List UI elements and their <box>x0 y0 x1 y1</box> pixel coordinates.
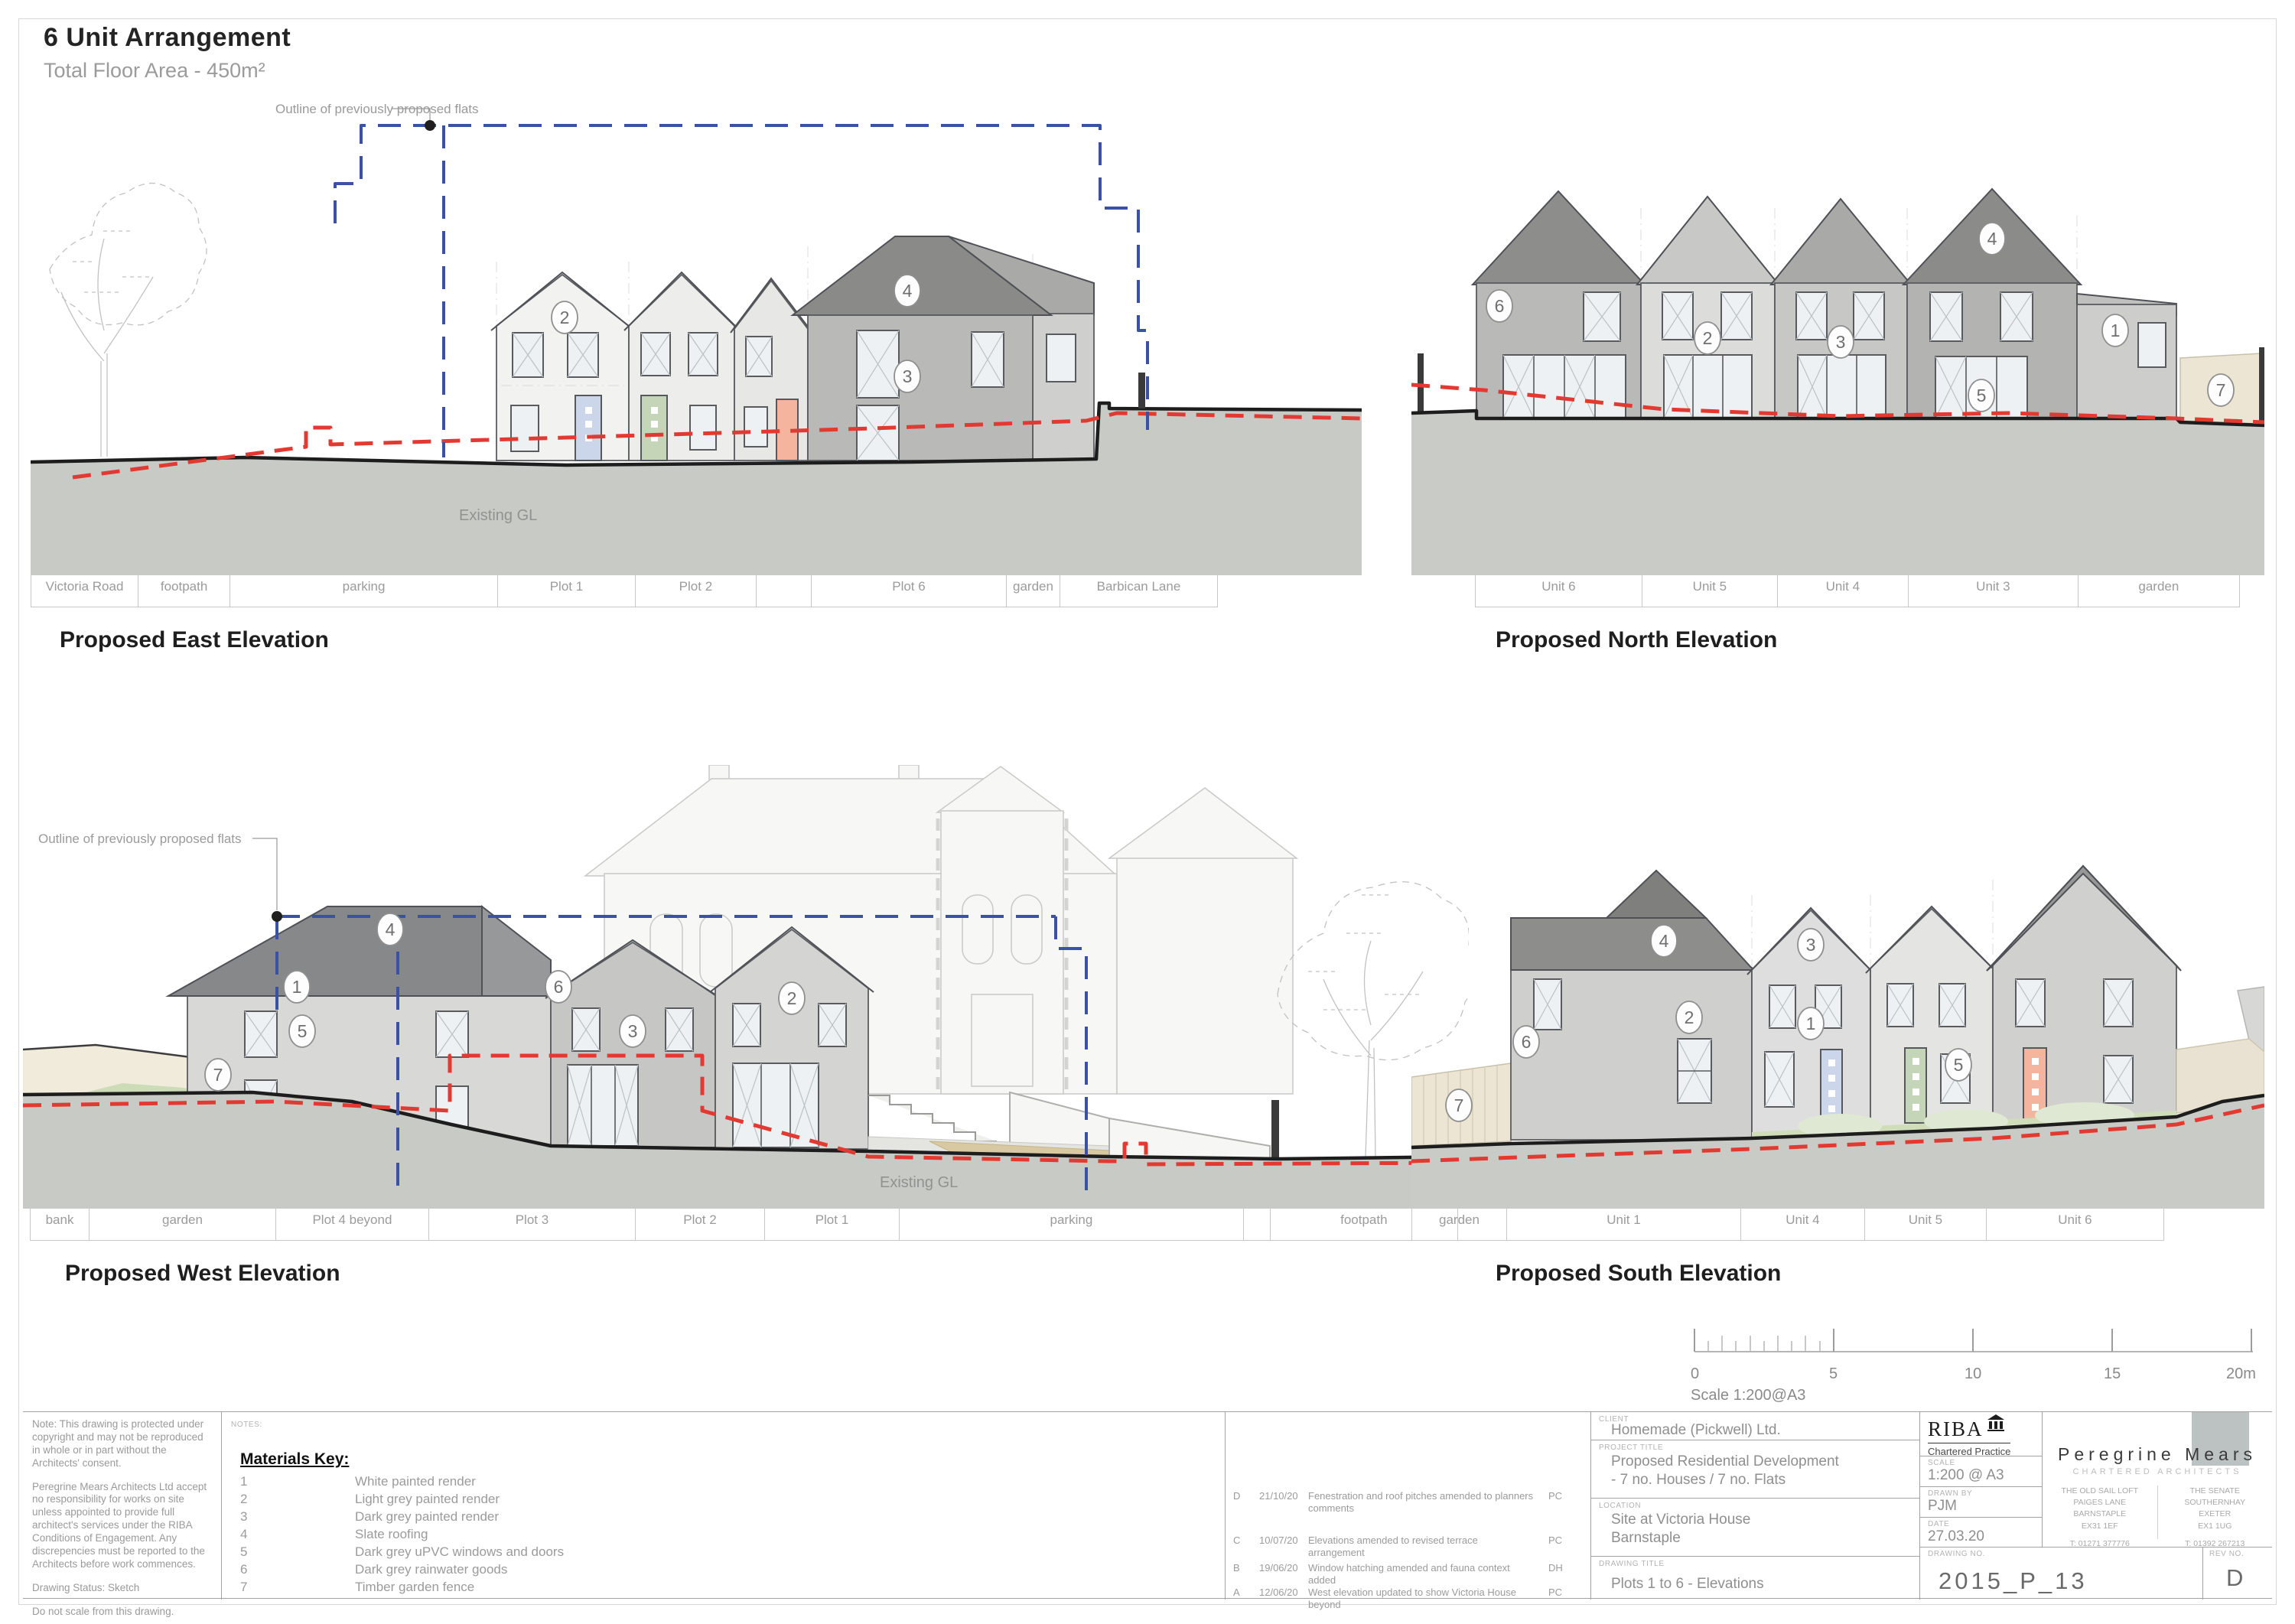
firm-office-barnstaple: THE OLD SAIL LOFT PAIGES LANE BARNSTAPLE… <box>2043 1486 2157 1550</box>
material-item: 7Timber garden fence <box>240 1579 1225 1596</box>
project-title-line: - 7 no. Houses / 7 no. Flats <box>1611 1472 1919 1489</box>
north-elevation-panel: 6 2 3 4 1 5 7 Unit 6 Unit 5 Unit 4 Unit … <box>1411 101 2264 653</box>
zone-label: parking <box>229 575 497 607</box>
marker: 6 <box>554 977 564 997</box>
marker: 4 <box>1987 229 1997 249</box>
zone-label: bank <box>30 1209 89 1241</box>
materials-key-heading: Materials Key: <box>240 1450 349 1469</box>
riba-logo: RIBA <box>1928 1417 1984 1440</box>
zone-label: garden <box>2078 575 2239 607</box>
scale-tick-label: 10 <box>1965 1365 1981 1382</box>
marker: 7 <box>1454 1095 1464 1115</box>
zone-label: footpath <box>138 575 229 607</box>
material-item: 3Dark grey painted render <box>240 1508 1225 1526</box>
note-paragraph: Do not scale from this drawing. <box>32 1606 212 1619</box>
date-field: DATE 27.03.20 <box>1920 1518 2042 1548</box>
east-elevation-drawing: Existing GL Outline of previously propos… <box>31 101 1362 575</box>
west-zone-strip: bank garden Plot 4 beyond Plot 3 Plot 2 … <box>23 1209 1469 1241</box>
riba-tagline: Chartered Practice <box>1928 1443 2010 1457</box>
marker: 1 <box>292 977 302 997</box>
zone-label: Barbican Lane <box>1060 575 1217 607</box>
zone-label: Unit 6 <box>1986 1209 2163 1241</box>
east-zone-strip: Victoria Road footpath parking Plot 1 Pl… <box>31 575 1362 607</box>
marker: 3 <box>1806 935 1816 955</box>
project-title-section: PROJECT TITLE Proposed Residential Devel… <box>1591 1440 1919 1499</box>
zone-label: Unit 4 <box>1777 575 1908 607</box>
east-house-plot1 <box>491 272 634 461</box>
drawing-title: Plots 1 to 6 - Elevations <box>1611 1576 1919 1593</box>
north-house-unit5 <box>1637 197 1779 418</box>
zone-label: Unit 4 <box>1740 1209 1864 1241</box>
marker: 4 <box>386 919 396 939</box>
west-steps-walls <box>868 1092 1279 1160</box>
materials-key: Materials Key: 1White painted render 2Li… <box>240 1450 1225 1596</box>
marker: 5 <box>1954 1055 1964 1075</box>
west-existing-gl-label: Existing GL <box>880 1174 958 1191</box>
south-house-g4 <box>1866 906 1997 1132</box>
north-house-unit4 <box>1771 199 1911 418</box>
west-elevation-drawing: Existing GL Outline of previously propos… <box>23 765 1469 1209</box>
south-zone-strip: garden Unit 1 Unit 4 Unit 5 Unit 6 <box>1411 1209 2264 1241</box>
rev-number: D <box>2226 1564 2272 1592</box>
firm-name: Peregrine Mears <box>2043 1444 2272 1465</box>
marker: 1 <box>1806 1014 1816 1033</box>
zone-label: Plot 1 <box>764 1209 899 1241</box>
drawn-by-value: PJM <box>1928 1498 2042 1515</box>
riba-badge: RIBA Chartered Practice <box>1920 1412 2042 1456</box>
zone-label: Plot 3 <box>428 1209 635 1241</box>
rev-number-field: REV NO. D <box>2203 1548 2272 1600</box>
material-item: 4Slate roofing <box>240 1526 1225 1544</box>
riba-portico-icon <box>1987 1414 2005 1431</box>
location-line: Site at Victoria House <box>1611 1512 1919 1528</box>
marker: 7 <box>2216 380 2226 400</box>
south-elevation-drawing: 7 6 2 4 3 1 5 <box>1411 765 2264 1209</box>
riba-scale-column: RIBA Chartered Practice SCALE 1:200 @ A3… <box>1920 1412 2043 1548</box>
zone-label: Victoria Road <box>31 575 138 607</box>
zone-label: garden <box>89 1209 275 1241</box>
date-value: 27.03.20 <box>1928 1528 2042 1545</box>
zone-label: Plot 4 beyond <box>275 1209 428 1241</box>
marker: 2 <box>787 988 797 1008</box>
note-paragraph: Drawing Status: Sketch <box>32 1582 212 1595</box>
scale-bar: 0 5 10 15 20m Scale 1:200@A3 <box>1691 1317 2261 1407</box>
drawing-sheet: { "sheet": { "title": "6 Unit Arrangemen… <box>0 0 2295 1624</box>
marker: 4 <box>903 281 913 301</box>
zone-spacer <box>756 575 811 607</box>
zone-spacer <box>1243 1209 1270 1241</box>
marker: 2 <box>560 308 570 327</box>
scale-tick-label: 5 <box>1829 1365 1838 1382</box>
south-house-g5 <box>1987 866 2181 1124</box>
note-paragraph: Note: This drawing is protected under co… <box>32 1418 212 1470</box>
north-elevation-title: Proposed North Elevation <box>1496 627 2264 653</box>
scale-field: SCALE 1:200 @ A3 <box>1920 1456 2042 1487</box>
zone-label: Unit 5 <box>1864 1209 1986 1241</box>
south-elevation-panel: 7 6 2 4 3 1 5 garden Unit 1 Unit 4 Unit … <box>1411 765 2264 1287</box>
marker: 6 <box>1522 1032 1532 1052</box>
sheet-header: 6 Unit Arrangement Total Floor Area - 45… <box>44 23 291 83</box>
zone-label: Plot 6 <box>811 575 1006 607</box>
west-elevation-panel: Existing GL Outline of previously propos… <box>23 765 1469 1287</box>
marker: 1 <box>2111 321 2121 340</box>
notes-label: NOTES: <box>231 1421 262 1429</box>
east-annotation: Outline of previously proposed flats <box>275 102 479 131</box>
zone-label: Unit 6 <box>1475 575 1642 607</box>
location-line: Barnstaple <box>1611 1530 1919 1547</box>
west-annotation-label: Outline of previously proposed flats <box>38 832 242 846</box>
scale-tick-label: 15 <box>2104 1365 2121 1382</box>
location-section: LOCATION Site at Victoria House Barnstap… <box>1591 1499 1919 1557</box>
north-ground <box>1411 411 2264 575</box>
zone-label: parking <box>899 1209 1243 1241</box>
revision-table: D21/10/20Fenestration and roof pitches a… <box>1226 1412 1591 1600</box>
drawing-title-section: DRAWING TITLE Plots 1 to 6 - Elevations <box>1591 1557 1919 1599</box>
firm-office-exeter: THE SENATE SOUTHERNHAY EXETER EX1 1UG T:… <box>2158 1486 2273 1550</box>
scale-label: Scale 1:200@A3 <box>1691 1387 1805 1403</box>
east-annotation-label: Outline of previously proposed flats <box>275 102 479 116</box>
south-right-walls <box>2176 987 2264 1113</box>
marker: 3 <box>1836 332 1846 352</box>
project-info-column: CLIENT Homemade (Pickwell) Ltd. PROJECT … <box>1591 1412 1920 1600</box>
drawing-number-field: DRAWING NO. 2015_P_13 <box>1920 1548 2203 1600</box>
marker: 5 <box>298 1021 308 1041</box>
scale-value: 1:200 @ A3 <box>1928 1467 2042 1484</box>
north-zone-strip: Unit 6 Unit 5 Unit 4 Unit 3 garden <box>1411 575 2264 607</box>
architect-firm-block: Peregrine Mears CHARTERED ARCHITECTS THE… <box>2043 1412 2272 1548</box>
marker: 2 <box>1685 1007 1694 1027</box>
annotation-dot <box>272 911 282 922</box>
material-item: 2Light grey painted render <box>240 1491 1225 1508</box>
notes-column: NOTES: Materials Key: 1White painted ren… <box>222 1412 1226 1600</box>
marker: 3 <box>628 1021 638 1041</box>
zone-label: garden <box>1411 1209 1506 1241</box>
zone-label: Plot 2 <box>635 575 756 607</box>
drawn-by-field: DRAWN BY PJM <box>1920 1487 2042 1518</box>
sheet-subtitle: Total Floor Area - 450m² <box>44 59 291 83</box>
scale-tick-label: 20m <box>2226 1365 2256 1382</box>
zone-label: Unit 5 <box>1642 575 1777 607</box>
marker: 2 <box>1703 328 1713 348</box>
west-elevation-title: Proposed West Elevation <box>65 1261 1469 1287</box>
south-house-left <box>1511 871 1753 1140</box>
tree-sketch <box>50 184 207 457</box>
zone-label: Plot 1 <box>497 575 635 607</box>
material-item: 5Dark grey uPVC windows and doors <box>240 1544 1225 1561</box>
zone-label: garden <box>1006 575 1060 607</box>
project-title-line: Proposed Residential Development <box>1611 1453 1919 1470</box>
west-annotation: Outline of previously proposed flats <box>38 832 282 922</box>
north-annex <box>2077 294 2176 418</box>
zone-label: Unit 1 <box>1506 1209 1740 1241</box>
marker: 7 <box>213 1065 223 1085</box>
marker: 3 <box>903 366 913 386</box>
sheet-title: 6 Unit Arrangement <box>44 23 291 53</box>
east-existing-gl-label: Existing GL <box>459 507 537 524</box>
firm-tagline: CHARTERED ARCHITECTS <box>2043 1467 2272 1476</box>
zone-label: Plot 2 <box>635 1209 764 1241</box>
zone-label: Unit 3 <box>1908 575 2078 607</box>
title-block: Note: This drawing is protected under co… <box>23 1411 2272 1599</box>
scale-tick-label: 0 <box>1691 1365 1699 1382</box>
east-elevation-panel: Existing GL Outline of previously propos… <box>31 101 1362 653</box>
north-elevation-drawing: 6 2 3 4 1 5 7 <box>1411 101 2264 575</box>
client-section: CLIENT Homemade (Pickwell) Ltd. <box>1591 1412 1919 1440</box>
marker: 5 <box>1977 386 1987 405</box>
marker: 6 <box>1495 296 1505 316</box>
east-elevation-title: Proposed East Elevation <box>60 627 1362 653</box>
marker: 4 <box>1659 931 1669 951</box>
material-item: 1White painted render <box>240 1473 1225 1491</box>
copyright-notes: Note: This drawing is protected under co… <box>23 1412 222 1600</box>
material-item: 6Dark grey rainwater goods <box>240 1561 1225 1579</box>
south-elevation-title: Proposed South Elevation <box>1496 1261 2264 1287</box>
annotation-dot <box>425 120 435 131</box>
client-name: Homemade (Pickwell) Ltd. <box>1611 1422 1919 1439</box>
drawing-number: 2015_P_13 <box>1939 1567 2202 1595</box>
note-paragraph: Peregrine Mears Architects Ltd accept no… <box>32 1481 212 1571</box>
